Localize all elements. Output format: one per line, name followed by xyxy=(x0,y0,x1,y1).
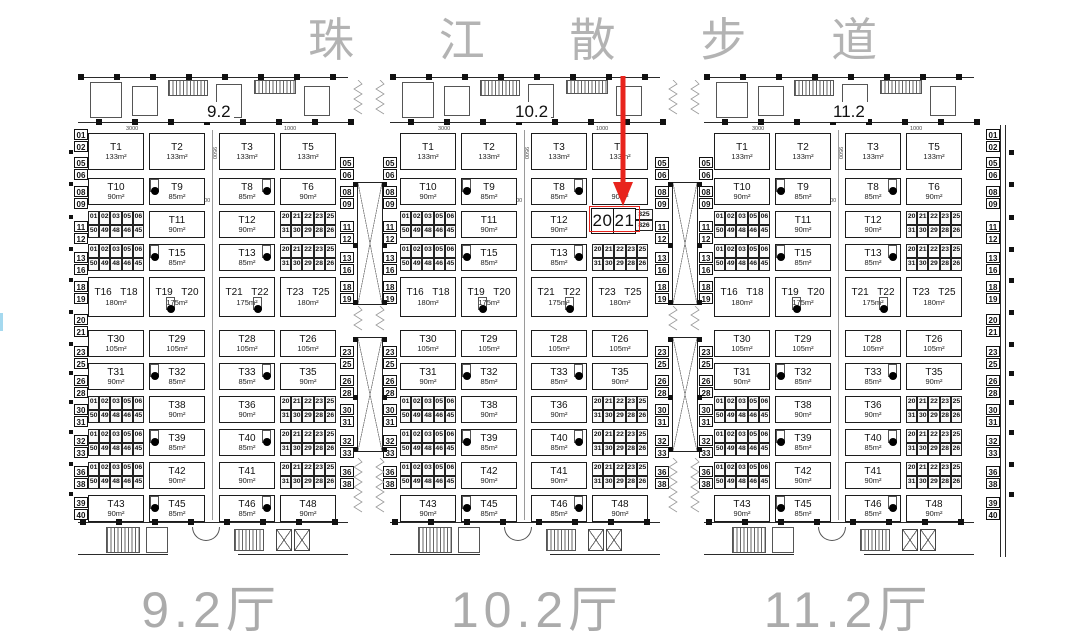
strip-cell-30: 30 xyxy=(603,410,614,424)
column-square xyxy=(69,247,73,251)
strip-cell-03: 03 xyxy=(736,462,747,476)
strip-cell-28: 28 xyxy=(940,410,951,424)
booth-area: 90m² xyxy=(480,411,497,419)
column-square xyxy=(353,243,358,248)
grid-tag-28: 28 xyxy=(655,387,669,398)
strip-cell-50: 50 xyxy=(714,225,725,239)
booth-area: 90m² xyxy=(238,411,255,419)
strip-cell-25: 25 xyxy=(951,244,962,258)
strip-cell-46: 46 xyxy=(748,476,759,490)
stair-hatch xyxy=(234,529,264,551)
strip-cell-29: 29 xyxy=(928,225,939,239)
booth-T1: T1133m² xyxy=(714,133,770,170)
strip-cell-01: 01 xyxy=(714,244,725,258)
column-square xyxy=(1009,310,1014,315)
strip-cell-23: 23 xyxy=(626,429,637,443)
door-arc xyxy=(206,527,220,541)
booth-T38: T3890m² xyxy=(461,396,517,423)
booth-T43: T4390m² xyxy=(400,495,456,522)
strip-cell-06: 06 xyxy=(133,211,144,225)
booth-T41: T4190m² xyxy=(531,462,587,489)
column-dot xyxy=(777,253,785,261)
booth-area: 105m² xyxy=(609,345,630,353)
dimension-label: 1000 xyxy=(596,126,608,132)
booth-area: 90m² xyxy=(168,226,185,234)
strip-cell-06: 06 xyxy=(133,244,144,258)
strip-cell-01: 01 xyxy=(714,462,725,476)
strip-cell-48: 48 xyxy=(736,476,747,490)
strip-cell-23: 23 xyxy=(626,244,637,258)
grid-tag-18: 18 xyxy=(986,281,1000,292)
strip-cell-29: 29 xyxy=(928,476,939,490)
strip-cell-21: 21 xyxy=(291,462,302,476)
booth-strip-right: 20212223253130292826 xyxy=(280,462,336,489)
strip-cell-31: 31 xyxy=(906,258,917,272)
booth-T30: T30105m² xyxy=(400,330,456,357)
stair-hatch xyxy=(880,80,922,94)
strip-cell-25: 25 xyxy=(325,396,336,410)
booth-T21-T22: T21 T22175m² xyxy=(219,277,275,317)
strip-cell-48: 48 xyxy=(422,443,433,457)
strip-cell-26: 26 xyxy=(951,443,962,457)
booth-area: 105m² xyxy=(923,345,944,353)
booth-area: 85m² xyxy=(480,259,497,267)
strip-cell-03: 03 xyxy=(110,244,121,258)
strip-cell-06: 06 xyxy=(759,462,770,476)
strip-cell-05: 05 xyxy=(122,396,133,410)
column-square xyxy=(1009,182,1014,187)
strip-cell-05: 05 xyxy=(434,396,445,410)
column-dot xyxy=(254,305,262,313)
grid-tag-36: 36 xyxy=(340,466,354,477)
expansion-joint-zigzag xyxy=(375,306,385,334)
grid-tag-23: 23 xyxy=(655,346,669,357)
strip-cell-50: 50 xyxy=(714,410,725,424)
strip-cell-49: 49 xyxy=(411,410,422,424)
booth-area: 90m² xyxy=(550,477,567,485)
column-square xyxy=(1009,278,1014,283)
strip-cell-20: 20 xyxy=(280,429,291,443)
grid-tag-08: 08 xyxy=(986,186,1000,197)
grid-tag-30: 30 xyxy=(699,404,713,415)
strip-cell-48: 48 xyxy=(110,410,121,424)
strip-cell-23: 23 xyxy=(314,211,325,225)
strip-cell-49: 49 xyxy=(725,410,736,424)
column-square xyxy=(668,447,673,452)
booth-strip-left: 01020305065049484645 xyxy=(400,396,456,423)
strip-cell-28: 28 xyxy=(314,443,325,457)
column-dot xyxy=(777,372,785,380)
column-square xyxy=(668,243,673,248)
strip-cell-45: 45 xyxy=(759,476,770,490)
column-square xyxy=(69,371,73,375)
strip-cell-29: 29 xyxy=(614,476,625,490)
stair-hatch xyxy=(546,529,576,551)
strip-cell-45: 45 xyxy=(759,258,770,272)
booth-area: 90m² xyxy=(299,193,316,201)
column-dot xyxy=(889,438,897,446)
strip-cell-48: 48 xyxy=(422,258,433,272)
strip-cell-20: 20 xyxy=(906,244,917,258)
strip-cell-48: 48 xyxy=(736,410,747,424)
strip-cell-45: 45 xyxy=(133,443,144,457)
column-dot xyxy=(151,253,159,261)
strip-cell-06: 06 xyxy=(759,396,770,410)
booth-strip-right: 20212223253130292826 xyxy=(906,462,962,489)
booth-area: 90m² xyxy=(864,477,881,485)
strip-cell-48: 48 xyxy=(736,443,747,457)
booth-area: 90m² xyxy=(925,193,942,201)
column-dot xyxy=(167,305,175,313)
grid-line xyxy=(212,130,213,520)
strip-cell-46: 46 xyxy=(122,225,133,239)
strip-cell-26: 26 xyxy=(325,443,336,457)
booth-T11: T1190m² xyxy=(461,211,517,238)
column-dot xyxy=(575,253,583,261)
strip-cell-31: 31 xyxy=(280,410,291,424)
column-dot xyxy=(889,504,897,512)
booth-T48: T4890m² xyxy=(906,495,962,522)
column-dot xyxy=(777,187,785,195)
strip-cell-26: 26 xyxy=(637,443,648,457)
elevator-box xyxy=(902,529,918,551)
booth-area: 90m² xyxy=(419,510,436,518)
column-square xyxy=(152,519,158,525)
grid-tag-05: 05 xyxy=(383,157,397,168)
strip-cell-02: 02 xyxy=(411,211,422,225)
column-square xyxy=(276,119,282,125)
strip-cell-06: 06 xyxy=(445,462,456,476)
strip-cell-46: 46 xyxy=(122,476,133,490)
booth-area: 85m² xyxy=(238,193,255,201)
grid-tag-30: 30 xyxy=(986,404,1000,415)
booth-strip-left: 01020305065049484645 xyxy=(400,462,456,489)
booth-area: 90m² xyxy=(733,193,750,201)
column-square xyxy=(69,182,73,186)
strip-cell-05: 05 xyxy=(748,462,759,476)
booth-area: 90m² xyxy=(299,378,316,386)
grid-tag-09: 09 xyxy=(986,198,1000,209)
booth-area: 85m² xyxy=(794,510,811,518)
stair-hatch xyxy=(566,80,608,94)
strip-cell-49: 49 xyxy=(99,258,110,272)
booth-T31: T3190m² xyxy=(714,363,770,390)
column-square xyxy=(644,519,650,525)
strip-cell-06: 06 xyxy=(133,396,144,410)
strip-cell-46: 46 xyxy=(748,225,759,239)
strip-cell-03: 03 xyxy=(422,244,433,258)
booth-strip-left: 01020305065049484645 xyxy=(88,396,144,423)
booth-T16-T18: T16 T18180m² xyxy=(400,277,456,317)
dimension-label: 9500 xyxy=(523,147,529,159)
booth-area: 85m² xyxy=(480,193,497,201)
strip-cell-23: 23 xyxy=(940,462,951,476)
booth-area: 90m² xyxy=(794,411,811,419)
grid-tag-12: 12 xyxy=(655,233,669,244)
booth-area: 85m² xyxy=(550,378,567,386)
booth-area: 105m² xyxy=(105,345,126,353)
strip-cell-48: 48 xyxy=(736,225,747,239)
strip-cell-05: 05 xyxy=(748,396,759,410)
grid-tag-05: 05 xyxy=(340,157,354,168)
strip-cell-03: 03 xyxy=(736,211,747,225)
strip-cell-01: 01 xyxy=(400,462,411,476)
dimension-label: 9500 xyxy=(837,147,843,159)
grid-tag-18: 18 xyxy=(340,281,354,292)
column-square xyxy=(722,119,728,125)
strip-cell-30: 30 xyxy=(917,258,928,272)
booth-area: 133m² xyxy=(548,153,569,161)
strip-cell-26: 26 xyxy=(637,476,648,490)
strip-cell-22: 22 xyxy=(928,211,939,225)
booth-area: 105m² xyxy=(417,345,438,353)
grid-tag-36: 36 xyxy=(74,466,88,477)
strip-cell-20: 20 xyxy=(906,396,917,410)
grid-tag-19: 19 xyxy=(74,293,88,304)
booth-area: 85m² xyxy=(168,378,185,386)
strip-cell-01: 01 xyxy=(88,211,99,225)
booth-area: 90m² xyxy=(238,477,255,485)
strip-cell-21: 21 xyxy=(291,211,302,225)
strip-cell-31: 31 xyxy=(592,476,603,490)
door-arc xyxy=(518,527,532,541)
strip-cell-05: 05 xyxy=(748,244,759,258)
column-square xyxy=(96,119,102,125)
booth-T10: T1090m² xyxy=(88,178,144,205)
strip-cell-25: 25 xyxy=(951,462,962,476)
grid-tag-30: 30 xyxy=(383,404,397,415)
strip-cell-06: 06 xyxy=(759,244,770,258)
grid-tag-32: 32 xyxy=(655,435,669,446)
column-square xyxy=(1009,342,1014,347)
grid-tag-38: 38 xyxy=(699,478,713,489)
strip-cell-31: 31 xyxy=(906,225,917,239)
grid-tag-26: 26 xyxy=(340,375,354,386)
strip-cell-01: 01 xyxy=(88,462,99,476)
column-square xyxy=(150,74,156,80)
grid-tag-06: 06 xyxy=(74,169,88,180)
grid-tag-05: 05 xyxy=(699,157,713,168)
booth-strip-right: 20212223253130292826 xyxy=(280,429,336,456)
strip-cell-25: 25 xyxy=(637,396,648,410)
floorplan-canvas: 珠 江 散 步 道 9.2 10.2 11.2 3000100060009500… xyxy=(0,0,1080,641)
hall-top-label-11-2: 11.2 xyxy=(830,102,868,122)
booth-T2: T2133m² xyxy=(149,133,205,170)
grid-tag-12: 12 xyxy=(74,233,88,244)
strip-cell-50: 50 xyxy=(88,443,99,457)
grid-tag-20: 20 xyxy=(74,314,88,325)
strip-cell-20: 20 xyxy=(906,211,917,225)
strip-cell-20: 20 xyxy=(592,244,603,258)
grid-tag-26: 26 xyxy=(986,375,1000,386)
grid-tag-06: 06 xyxy=(383,169,397,180)
column-dot xyxy=(263,372,271,380)
strip-cell-48: 48 xyxy=(110,258,121,272)
booth-area: 90m² xyxy=(550,226,567,234)
strip-cell-25: 25 xyxy=(637,429,648,443)
strip-cell-49: 49 xyxy=(725,258,736,272)
grid-tag-38: 38 xyxy=(383,478,397,489)
booth-T5: T5133m² xyxy=(280,133,336,170)
strip-cell-50: 50 xyxy=(400,443,411,457)
grid-tag-38: 38 xyxy=(655,478,669,489)
column-square xyxy=(850,519,856,525)
expansion-joint-zigzag xyxy=(690,458,700,513)
grid-tag-06: 06 xyxy=(340,169,354,180)
stair-hatch xyxy=(480,80,520,96)
booth-area: 90m² xyxy=(794,477,811,485)
booth-T23-T25: T23 T25180m² xyxy=(906,277,962,317)
column-square xyxy=(353,182,358,187)
grid-line xyxy=(838,130,839,520)
strip-cell-01: 01 xyxy=(400,429,411,443)
band-wall xyxy=(78,122,348,123)
column-square xyxy=(740,74,746,80)
grid-tag-28: 28 xyxy=(74,387,88,398)
strip-cell-49: 49 xyxy=(99,410,110,424)
column-square xyxy=(814,519,820,525)
booth-area: 85m² xyxy=(480,510,497,518)
booth-strip-right: 20212223253130292826 xyxy=(906,396,962,423)
strip-cell-05: 05 xyxy=(122,211,133,225)
booth-area: 90m² xyxy=(168,411,185,419)
grid-tag-31: 31 xyxy=(986,416,1000,427)
column-square xyxy=(536,519,542,525)
stair-hatch xyxy=(106,527,140,553)
grid-tag-31: 31 xyxy=(699,416,713,427)
booth-T31: T3190m² xyxy=(400,363,456,390)
booth-T3: T3133m² xyxy=(531,133,587,170)
column-square xyxy=(426,74,432,80)
strip-cell-50: 50 xyxy=(88,225,99,239)
strip-cell-28: 28 xyxy=(626,258,637,272)
band-wall xyxy=(78,554,168,555)
strip-cell-50: 50 xyxy=(400,476,411,490)
strip-cell-25: 25 xyxy=(325,211,336,225)
booth-area: 90m² xyxy=(611,378,628,386)
strip-cell-20: 20 xyxy=(280,462,291,476)
booth-T36: T3690m² xyxy=(219,396,275,423)
strip-cell-46: 46 xyxy=(434,225,445,239)
grid-tag-05: 05 xyxy=(986,157,1000,168)
strip-cell-22: 22 xyxy=(614,462,625,476)
strip-cell-50: 50 xyxy=(400,225,411,239)
booth-T3: T3133m² xyxy=(845,133,901,170)
strip-cell-31: 31 xyxy=(280,225,291,239)
grid-tag-09: 09 xyxy=(699,198,713,209)
column-square xyxy=(382,395,387,400)
booth-area: 85m² xyxy=(238,378,255,386)
booth-T35: T3590m² xyxy=(906,363,962,390)
column-square xyxy=(168,119,174,125)
strip-cell-26: 26 xyxy=(325,258,336,272)
booth-T28: T28105m² xyxy=(219,330,275,357)
grid-tag-23: 23 xyxy=(340,346,354,357)
booth-strip-left: 01020305065049484645 xyxy=(714,244,770,271)
strip-cell-30: 30 xyxy=(291,443,302,457)
strip-cell-46: 46 xyxy=(122,258,133,272)
column-square xyxy=(500,519,506,525)
strip-cell-46: 46 xyxy=(748,258,759,272)
grid-tag-19: 19 xyxy=(986,293,1000,304)
strip-cell-02: 02 xyxy=(99,211,110,225)
column-square xyxy=(69,278,73,282)
booth-area: 85m² xyxy=(238,510,255,518)
strip-cell-21: 21 xyxy=(603,244,614,258)
strip-cell-45: 45 xyxy=(133,410,144,424)
strip-cell-25: 25 xyxy=(951,211,962,225)
strip-cell-21: 21 xyxy=(917,396,928,410)
strip-cell-29: 29 xyxy=(614,443,625,457)
booth-area: 90m² xyxy=(107,193,124,201)
strip-cell-22: 22 xyxy=(614,244,625,258)
strip-cell-02: 02 xyxy=(411,429,422,443)
booth-number: T19 T20 xyxy=(155,287,198,299)
grid-tag-33: 33 xyxy=(340,447,354,458)
strip-cell-49: 49 xyxy=(411,476,422,490)
column-square xyxy=(1009,492,1014,497)
strip-cell-31: 31 xyxy=(592,258,603,272)
column-square xyxy=(132,119,138,125)
strip-cell-28: 28 xyxy=(626,443,637,457)
column-square xyxy=(706,519,712,525)
column-square xyxy=(642,74,648,80)
strip-cell-02: 02 xyxy=(411,396,422,410)
strip-cell-49: 49 xyxy=(99,443,110,457)
grid-tag-11: 11 xyxy=(383,221,397,232)
strip-cell-20: 20 xyxy=(906,429,917,443)
column-square xyxy=(697,182,702,187)
booth-strip-right: 20212223253130292826 xyxy=(906,211,962,238)
booth-T11: T1190m² xyxy=(775,211,831,238)
strip-cell-28: 28 xyxy=(940,225,951,239)
strip-cell-06: 06 xyxy=(759,211,770,225)
column-square xyxy=(240,119,246,125)
strip-cell-28: 28 xyxy=(940,476,951,490)
column-square xyxy=(428,519,434,525)
booth-area: 85m² xyxy=(864,444,881,452)
strip-cell-26: 26 xyxy=(951,225,962,239)
band-room xyxy=(304,86,330,116)
strip-cell-25: 25 xyxy=(325,462,336,476)
grid-tag-31: 31 xyxy=(340,416,354,427)
strip-cell-50: 50 xyxy=(88,258,99,272)
strip-cell-46: 46 xyxy=(122,443,133,457)
booth-strip-left: 01020305065049484645 xyxy=(400,244,456,271)
column-square xyxy=(222,74,228,80)
column-square xyxy=(382,243,387,248)
grid-tag-32: 32 xyxy=(383,435,397,446)
booth-area: 133m² xyxy=(792,153,813,161)
booth-T48: T4890m² xyxy=(592,495,648,522)
column-square xyxy=(1009,247,1014,252)
red-arrow-pointer xyxy=(608,76,638,208)
booth-strip-left: 01020305065049484645 xyxy=(88,244,144,271)
booth-area: 90m² xyxy=(733,510,750,518)
column-square xyxy=(462,74,468,80)
strip-cell-29: 29 xyxy=(302,410,313,424)
booth-strip-right: 20212223253130292826 xyxy=(280,211,336,238)
strip-cell-29: 29 xyxy=(302,476,313,490)
booth-strip-left: 01020305065049484645 xyxy=(88,429,144,456)
strip-cell-30: 30 xyxy=(291,476,302,490)
strip-cell-02: 02 xyxy=(725,429,736,443)
booth-area: 85m² xyxy=(480,378,497,386)
strip-cell-45: 45 xyxy=(445,258,456,272)
door-arc xyxy=(818,527,832,541)
booth-number: T21 T22 xyxy=(537,287,580,299)
strip-cell-23: 23 xyxy=(314,396,325,410)
